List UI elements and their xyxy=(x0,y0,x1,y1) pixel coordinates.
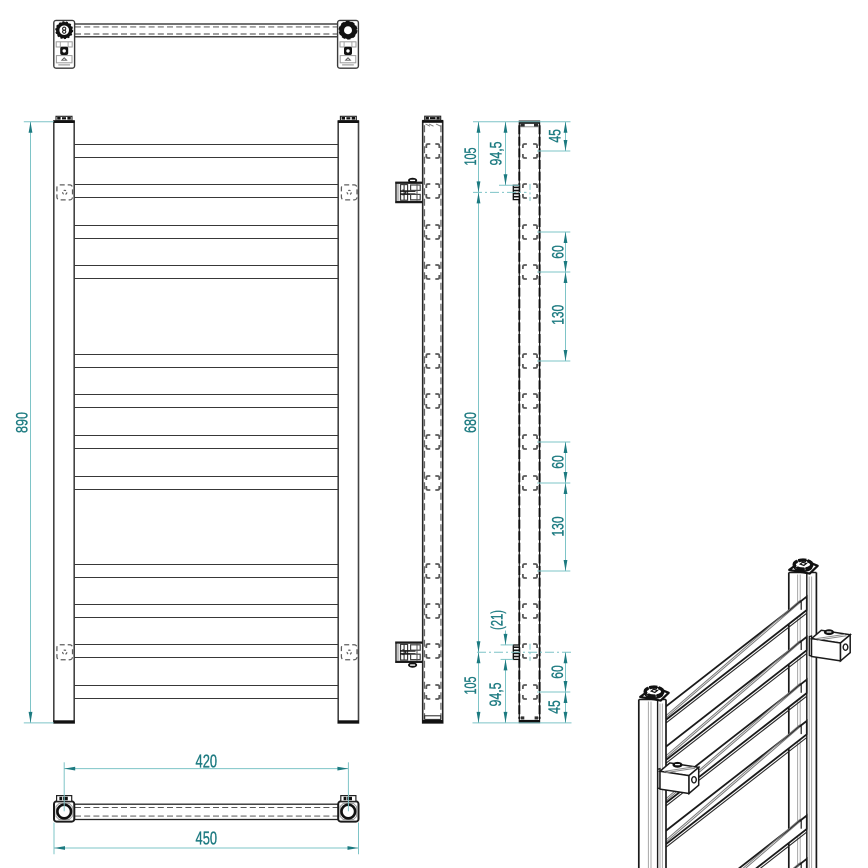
svg-text:94,5: 94,5 xyxy=(486,683,505,707)
svg-text:60: 60 xyxy=(548,455,567,469)
svg-text:45: 45 xyxy=(545,700,564,714)
svg-text:60: 60 xyxy=(548,245,567,259)
svg-text:105: 105 xyxy=(461,677,480,695)
svg-text:60: 60 xyxy=(548,665,567,679)
svg-text:45: 45 xyxy=(546,129,565,143)
svg-text:420: 420 xyxy=(196,750,218,771)
svg-text:450: 450 xyxy=(196,828,218,849)
svg-text:(21): (21) xyxy=(488,610,507,630)
svg-text:94,5: 94,5 xyxy=(487,142,506,166)
svg-text:130: 130 xyxy=(549,517,568,537)
svg-text:680: 680 xyxy=(461,412,480,433)
svg-text:890: 890 xyxy=(12,412,31,433)
svg-text:130: 130 xyxy=(549,305,568,325)
svg-text:105: 105 xyxy=(461,148,480,166)
